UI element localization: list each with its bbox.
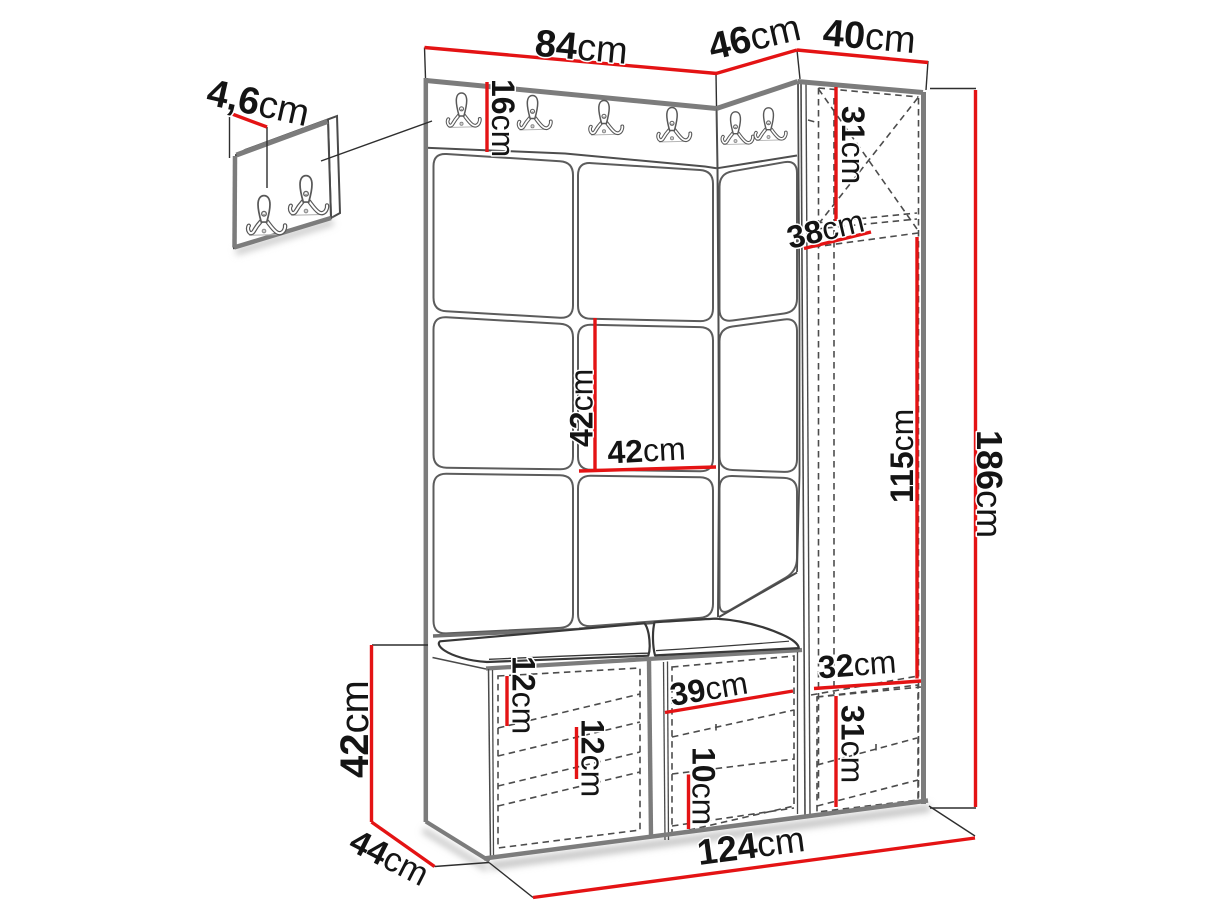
svg-text:40cm: 40cm — [821, 12, 917, 62]
svg-text:42cm: 42cm — [333, 680, 377, 778]
svg-text:31cm: 31cm — [835, 106, 871, 184]
svg-text:12cm: 12cm — [575, 719, 611, 797]
svg-text:46cm: 46cm — [705, 7, 805, 69]
svg-text:42cm: 42cm — [606, 430, 686, 470]
svg-text:31cm: 31cm — [835, 705, 871, 783]
svg-text:12cm: 12cm — [506, 656, 542, 734]
svg-text:115cm: 115cm — [884, 409, 920, 503]
svg-text:42cm: 42cm — [564, 369, 600, 447]
svg-text:16cm: 16cm — [485, 79, 521, 157]
svg-text:84cm: 84cm — [533, 23, 629, 73]
svg-text:10cm: 10cm — [686, 747, 722, 825]
svg-text:186cm: 186cm — [969, 430, 1010, 538]
svg-text:32cm: 32cm — [817, 643, 898, 685]
svg-text:4,6cm: 4,6cm — [203, 72, 313, 135]
